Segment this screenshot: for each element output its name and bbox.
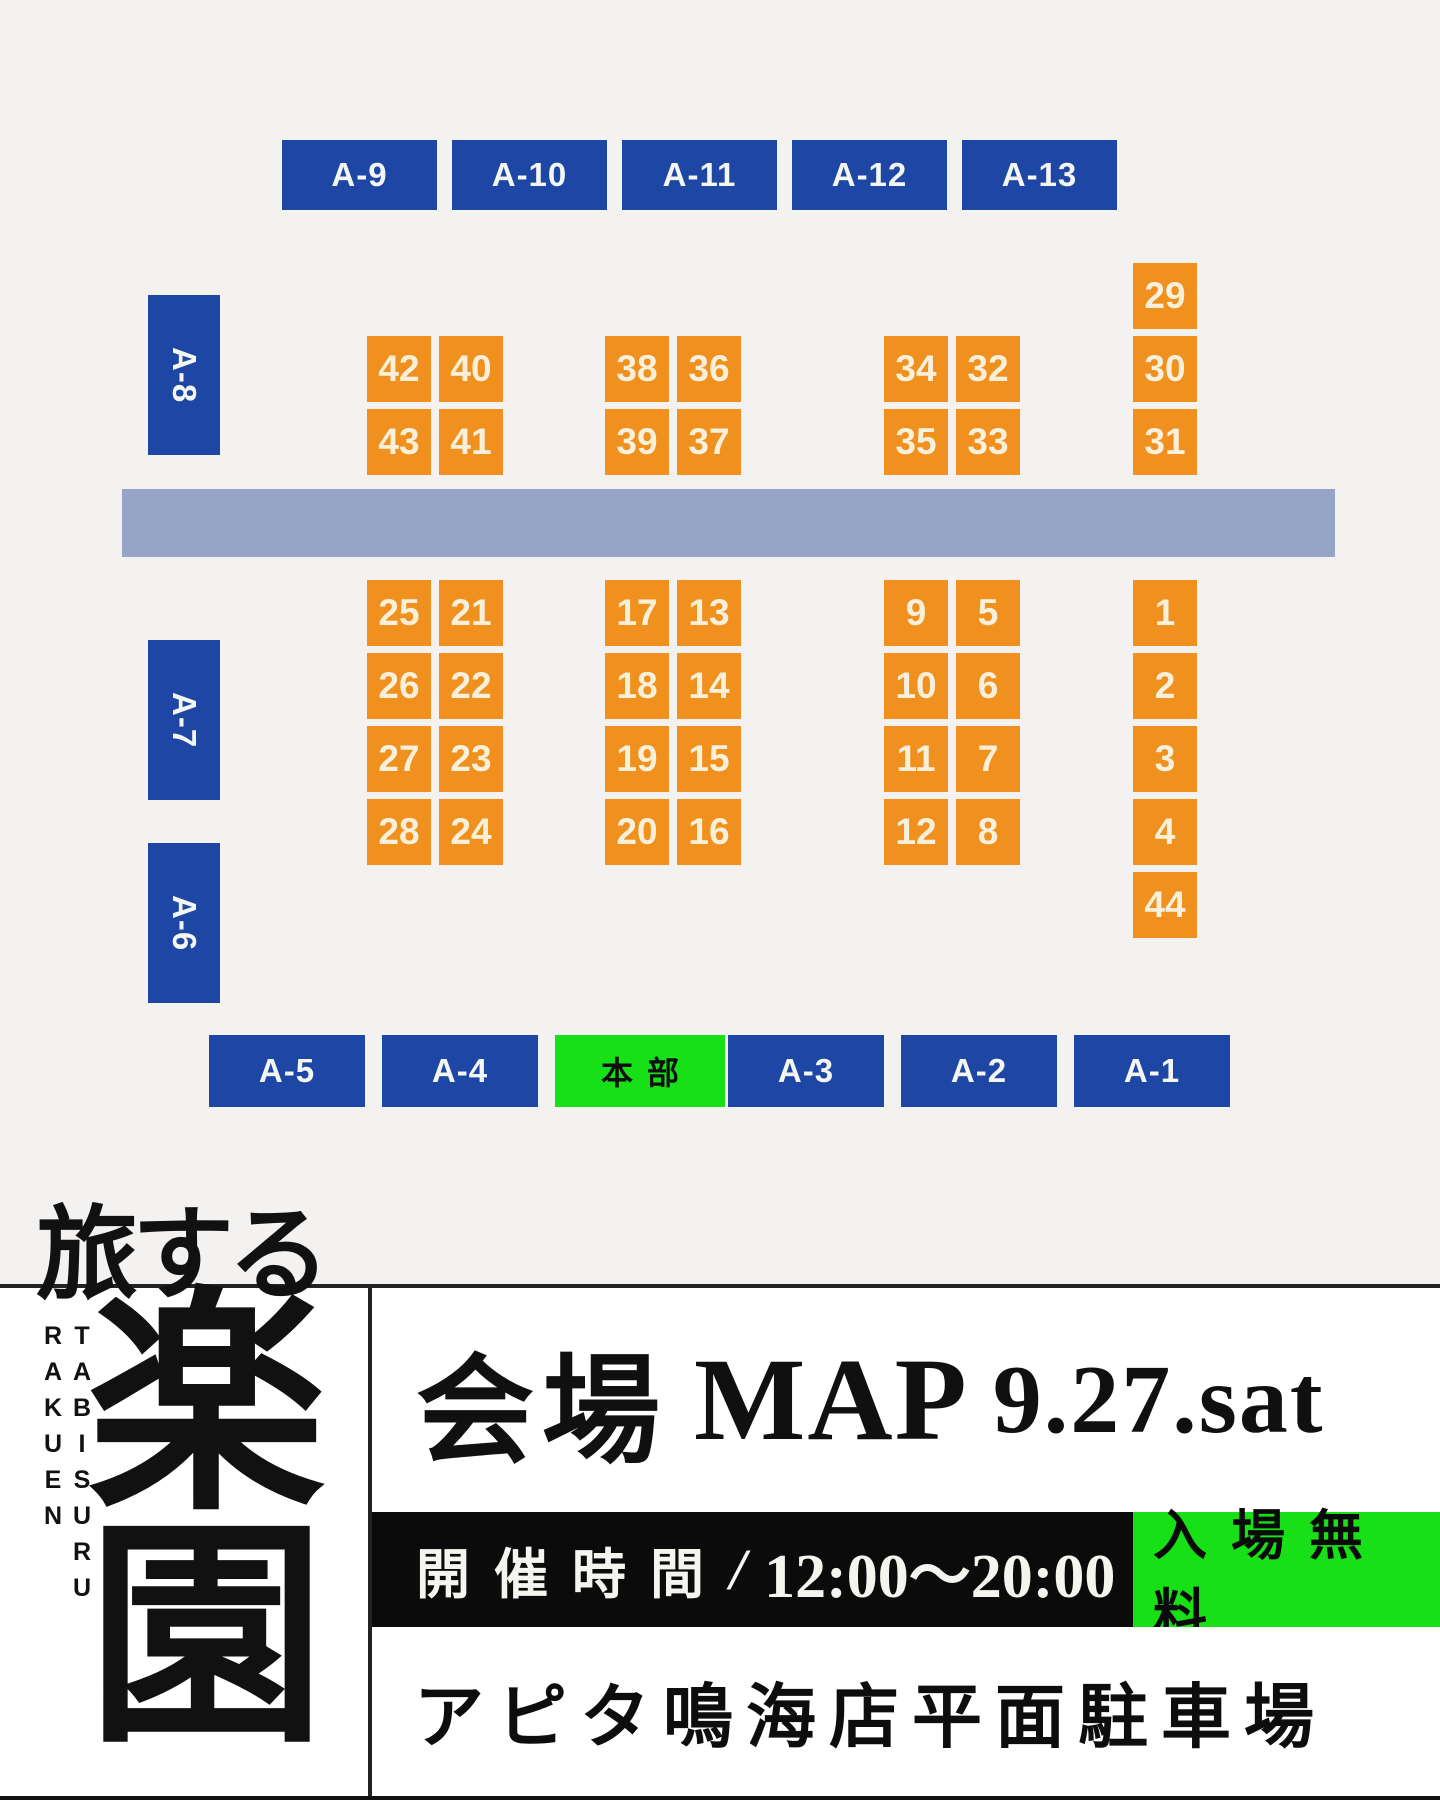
- venue-name: アピタ鳴海店平面駐車場: [372, 1627, 1440, 1796]
- stall-8: 8: [956, 799, 1020, 865]
- venue-map-area: A-9A-10A-11A-12A-13A-8A-7A-6A-5A-4本部A-3A…: [0, 0, 1440, 1288]
- heading-venue-label: 会場: [416, 1315, 668, 1486]
- booth-a-13: A-13: [962, 140, 1117, 210]
- hours-bar: 開催時間 / 12:00〜20:00: [372, 1512, 1133, 1627]
- stall-36: 36: [677, 336, 741, 402]
- stall-44: 44: [1133, 872, 1197, 938]
- stall-32: 32: [956, 336, 1020, 402]
- bottom-border: [0, 1796, 1440, 1800]
- stall-30: 30: [1133, 336, 1197, 402]
- hours-separator: /: [730, 1536, 746, 1603]
- stall-16: 16: [677, 799, 741, 865]
- stall-1: 1: [1133, 580, 1197, 646]
- stall-34: 34: [884, 336, 948, 402]
- stall-10: 10: [884, 653, 948, 719]
- stall-3: 3: [1133, 726, 1197, 792]
- stall-19: 19: [605, 726, 669, 792]
- hours-value: 12:00〜20:00: [764, 1525, 1115, 1615]
- stall-24: 24: [439, 799, 503, 865]
- stall-2: 2: [1133, 653, 1197, 719]
- booth-a-7: A-7: [148, 640, 220, 800]
- stall-20: 20: [605, 799, 669, 865]
- booth-a-3: A-3: [728, 1035, 884, 1107]
- booth-a-1: A-1: [1074, 1035, 1230, 1107]
- stall-4: 4: [1133, 799, 1197, 865]
- stall-14: 14: [677, 653, 741, 719]
- booth-a-5: A-5: [209, 1035, 365, 1107]
- heading-date: 9.27.sat: [993, 1344, 1325, 1456]
- stall-42: 42: [367, 336, 431, 402]
- logo-title-kanji: 楽園: [84, 1292, 329, 1756]
- stall-31: 31: [1133, 409, 1197, 475]
- booth-a-9: A-9: [282, 140, 437, 210]
- stall-38: 38: [605, 336, 669, 402]
- booth-a-6: A-6: [148, 843, 220, 1003]
- road-aisle: [122, 489, 1335, 557]
- stall-43: 43: [367, 409, 431, 475]
- stall-22: 22: [439, 653, 503, 719]
- admission-free-badge: 入場無料: [1133, 1512, 1440, 1627]
- event-venue-map-poster: A-9A-10A-11A-12A-13A-8A-7A-6A-5A-4本部A-3A…: [0, 0, 1440, 1800]
- stall-29: 29: [1133, 263, 1197, 329]
- booth-a-10: A-10: [452, 140, 607, 210]
- stall-7: 7: [956, 726, 1020, 792]
- stall-23: 23: [439, 726, 503, 792]
- stall-37: 37: [677, 409, 741, 475]
- stall-40: 40: [439, 336, 503, 402]
- booth-a-12: A-12: [792, 140, 947, 210]
- stall-5: 5: [956, 580, 1020, 646]
- hours-label: 開催時間: [416, 1530, 728, 1609]
- booth-a-4: A-4: [382, 1035, 538, 1107]
- stall-25: 25: [367, 580, 431, 646]
- stall-33: 33: [956, 409, 1020, 475]
- stall-6: 6: [956, 653, 1020, 719]
- stall-28: 28: [367, 799, 431, 865]
- map-heading: 会場 MAP 9.27.sat: [372, 1288, 1440, 1512]
- stall-15: 15: [677, 726, 741, 792]
- booth-a-11: A-11: [622, 140, 777, 210]
- stall-39: 39: [605, 409, 669, 475]
- stall-21: 21: [439, 580, 503, 646]
- stall-35: 35: [884, 409, 948, 475]
- booth-a-8: A-8: [148, 295, 220, 455]
- booth-a-2: A-2: [901, 1035, 1057, 1107]
- stall-26: 26: [367, 653, 431, 719]
- booth-本部: 本部: [555, 1035, 725, 1107]
- stall-18: 18: [605, 653, 669, 719]
- stall-17: 17: [605, 580, 669, 646]
- stall-27: 27: [367, 726, 431, 792]
- stall-12: 12: [884, 799, 948, 865]
- heading-map-label: MAP: [694, 1332, 969, 1468]
- stall-41: 41: [439, 409, 503, 475]
- stall-9: 9: [884, 580, 948, 646]
- logo-romaji-vertical: TABISURU RAKUEN: [38, 1322, 96, 1787]
- stall-13: 13: [677, 580, 741, 646]
- stall-11: 11: [884, 726, 948, 792]
